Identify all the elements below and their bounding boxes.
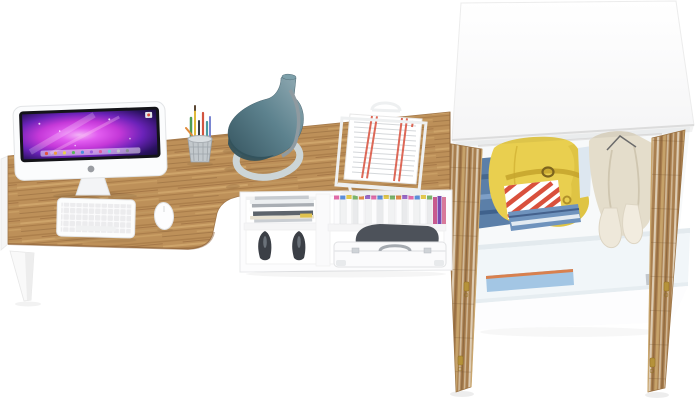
wardrobe-top	[452, 1, 694, 147]
keyboard	[54, 198, 137, 244]
binder-row	[334, 195, 446, 224]
imac-stand	[76, 177, 110, 195]
imac-screen	[22, 110, 157, 160]
desk-side-panel	[1, 156, 8, 250]
shelf-unit	[240, 190, 452, 278]
scene-svg	[0, 0, 700, 400]
product-render	[0, 0, 700, 400]
papers	[344, 114, 422, 184]
dark-bag	[356, 224, 439, 244]
magazine-stack	[249, 195, 315, 222]
